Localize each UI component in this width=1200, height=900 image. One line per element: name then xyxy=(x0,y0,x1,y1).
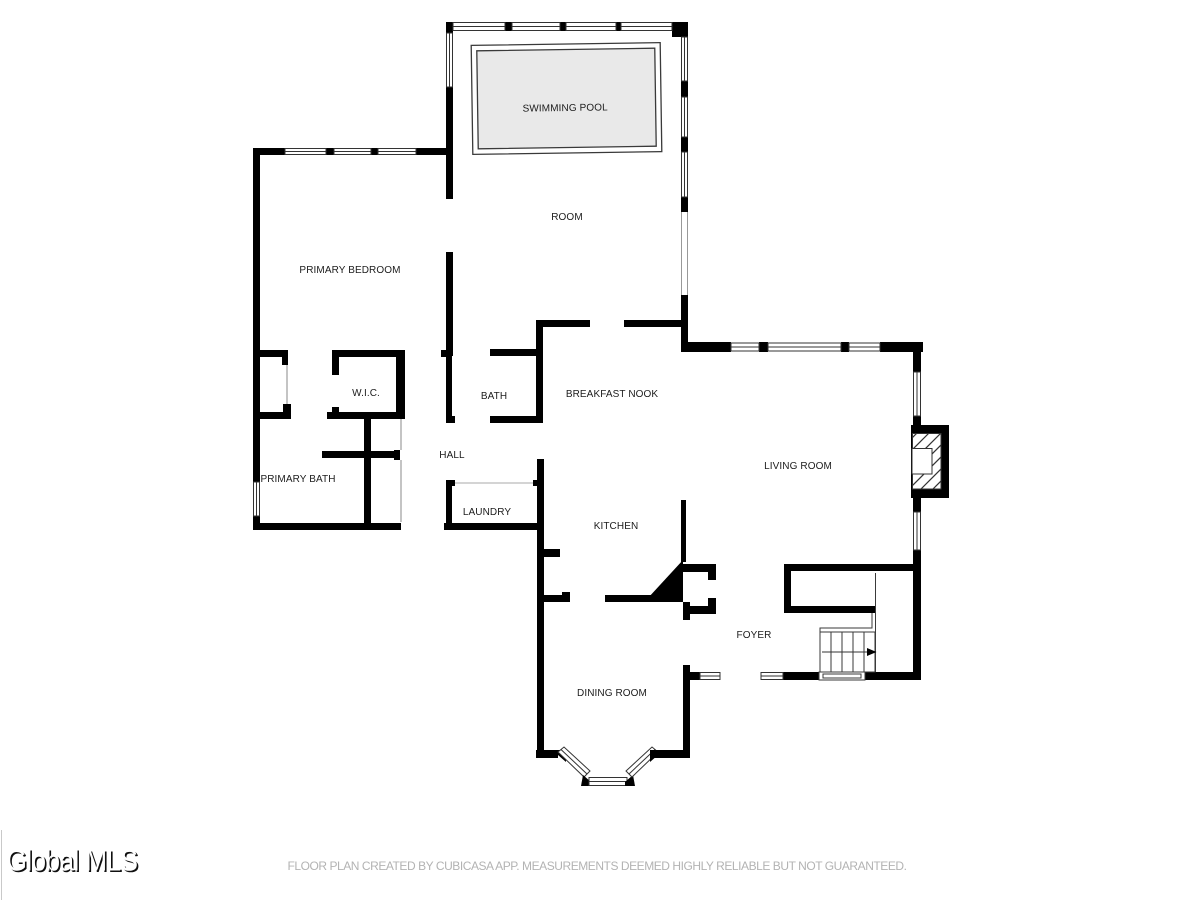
svg-text:KITCHEN: KITCHEN xyxy=(594,521,639,532)
svg-text:ROOM: ROOM xyxy=(551,212,583,223)
svg-text:LAUNDRY: LAUNDRY xyxy=(463,507,512,518)
svg-text:BREAKFAST NOOK: BREAKFAST NOOK xyxy=(566,389,659,400)
svg-text:FLOOR PLAN CREATED BY CUBICASA: FLOOR PLAN CREATED BY CUBICASA APP. MEAS… xyxy=(288,859,907,873)
svg-text:PRIMARY BATH: PRIMARY BATH xyxy=(260,474,335,485)
svg-text:Global MLS: Global MLS xyxy=(6,843,137,877)
svg-text:PRIMARY BEDROOM: PRIMARY BEDROOM xyxy=(299,265,400,276)
svg-text:LIVING ROOM: LIVING ROOM xyxy=(764,461,832,472)
svg-text:SWIMMING POOL: SWIMMING POOL xyxy=(522,102,608,114)
svg-text:FOYER: FOYER xyxy=(737,630,772,641)
svg-text:W.I.C.: W.I.C. xyxy=(352,388,380,399)
svg-text:HALL: HALL xyxy=(439,450,465,461)
svg-text:DINING ROOM: DINING ROOM xyxy=(577,688,647,699)
svg-text:BATH: BATH xyxy=(481,391,507,402)
